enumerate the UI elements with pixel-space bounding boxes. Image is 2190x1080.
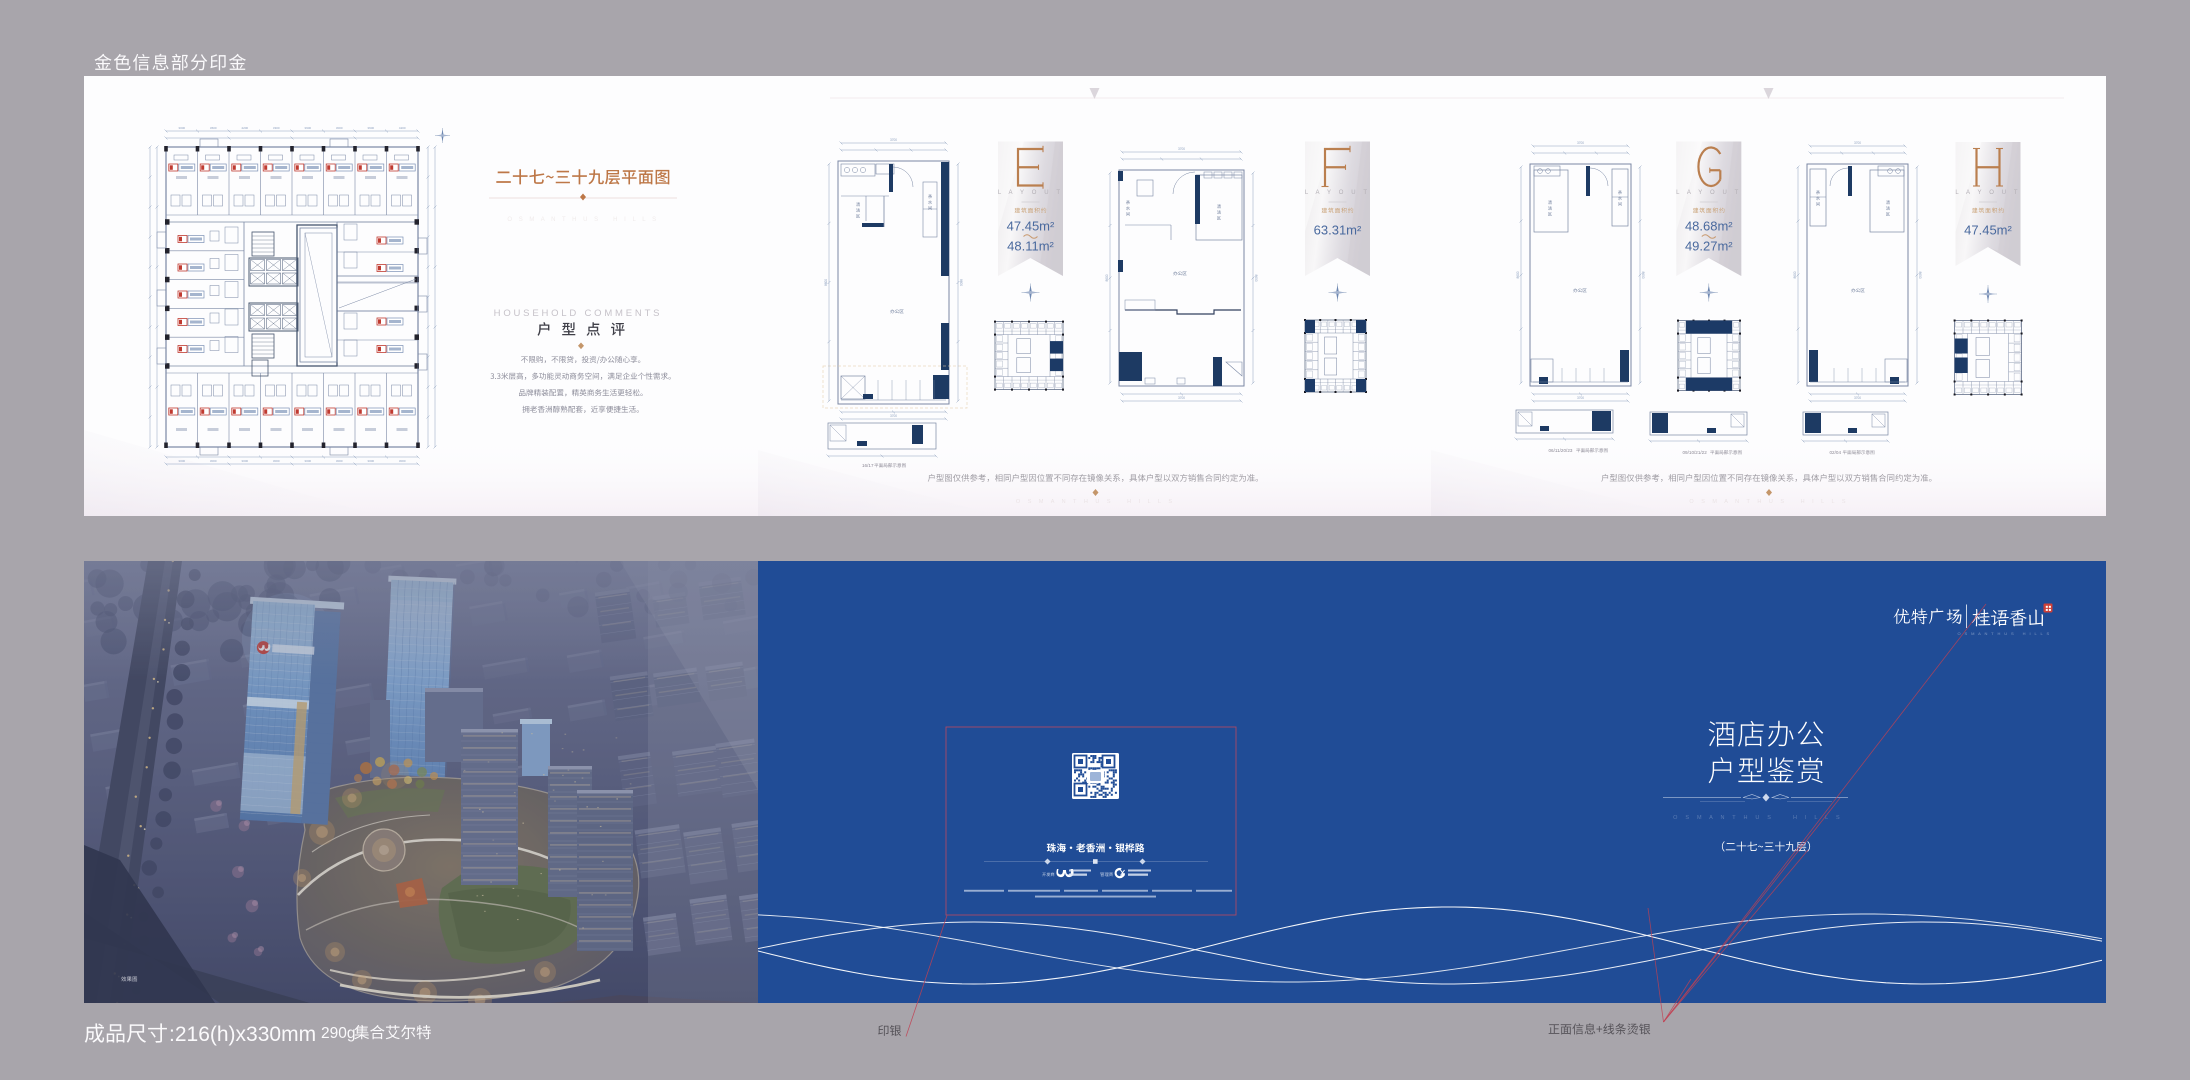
svg-text:48.11m²: 48.11m² [1007, 239, 1054, 254]
svg-text:47.45m²: 47.45m² [1964, 223, 2012, 238]
svg-text:L A Y O U T: L A Y O U T [998, 190, 1063, 196]
svg-text:8600: 8600 [1516, 271, 1520, 278]
svg-text:L A Y O U T: L A Y O U T [1676, 190, 1741, 196]
svg-text:06/11/20/23: 06/11/20/23 [1549, 448, 1573, 453]
svg-text:3000: 3000 [304, 459, 311, 463]
svg-text:3700: 3700 [890, 138, 897, 142]
svg-text::216(h)x330mm: :216(h)x330mm [169, 1023, 316, 1046]
svg-text:3300: 3300 [273, 126, 280, 130]
svg-text:3000: 3000 [273, 459, 280, 463]
svg-text:3700: 3700 [890, 414, 897, 418]
svg-text:8600: 8600 [1641, 271, 1645, 278]
svg-text:4200: 4200 [241, 126, 248, 130]
svg-text:16/17: 16/17 [862, 463, 874, 468]
svg-text:3000: 3000 [178, 126, 185, 130]
svg-text:3700: 3700 [1577, 141, 1584, 145]
svg-text:O S M A N T H U S H I L L S: O S M A N T H U S H I L L S [1673, 815, 1843, 821]
svg-text:3000: 3000 [336, 126, 343, 130]
svg-text:8600: 8600 [1918, 271, 1922, 278]
svg-text:L A Y O U T: L A Y O U T [1955, 190, 2020, 196]
svg-text:3700: 3700 [1854, 396, 1861, 400]
svg-text:47.45m²: 47.45m² [1007, 219, 1055, 234]
svg-text:O S M A N T H U S H I L L S: O S M A N T H U S H I L L S [507, 217, 658, 223]
svg-text:L A Y O U T: L A Y O U T [1305, 190, 1370, 196]
svg-text:3600: 3600 [210, 126, 217, 130]
svg-text:3000: 3000 [336, 459, 343, 463]
svg-text:8600: 8600 [824, 279, 828, 286]
svg-text:3700: 3700 [1178, 396, 1185, 400]
svg-text:8600: 8600 [1105, 274, 1109, 281]
svg-text:3000: 3000 [210, 459, 217, 463]
svg-text:3700: 3700 [1178, 147, 1185, 151]
svg-text:49.27m²: 49.27m² [1685, 239, 1733, 254]
svg-text:8600: 8600 [959, 279, 963, 286]
svg-text:3000: 3000 [241, 459, 248, 463]
svg-text:4200: 4200 [399, 126, 406, 130]
svg-text:09/10/21/22: 09/10/21/22 [1683, 450, 1708, 455]
svg-text:63.31m²: 63.31m² [1314, 223, 1362, 238]
svg-text:3700: 3700 [1854, 141, 1861, 145]
svg-text:O S M A N T H U S H I L L S: O S M A N T H U S H I L L S [1689, 499, 1848, 505]
svg-text:3000: 3000 [399, 459, 406, 463]
svg-text:3000: 3000 [367, 459, 374, 463]
svg-text:3000: 3000 [178, 459, 185, 463]
svg-text:02/04: 02/04 [1830, 450, 1842, 455]
svg-text:3900: 3900 [304, 126, 311, 130]
svg-text:8600: 8600 [1254, 274, 1258, 281]
svg-text:3600: 3600 [367, 126, 374, 130]
svg-text:290g: 290g [321, 1025, 355, 1042]
svg-text:48.68m²: 48.68m² [1685, 219, 1733, 234]
svg-text:O S M A N T H U S H I L L S: O S M A N T H U S H I L L S [1016, 499, 1175, 505]
svg-text:HOUSEHOLD COMMENTS: HOUSEHOLD COMMENTS [494, 308, 663, 319]
svg-text:O S M A N T H U S H I L L S: O S M A N T H U S H I L L S [1957, 631, 2050, 636]
svg-text:3700: 3700 [1577, 396, 1584, 400]
svg-text:8600: 8600 [1793, 271, 1797, 278]
